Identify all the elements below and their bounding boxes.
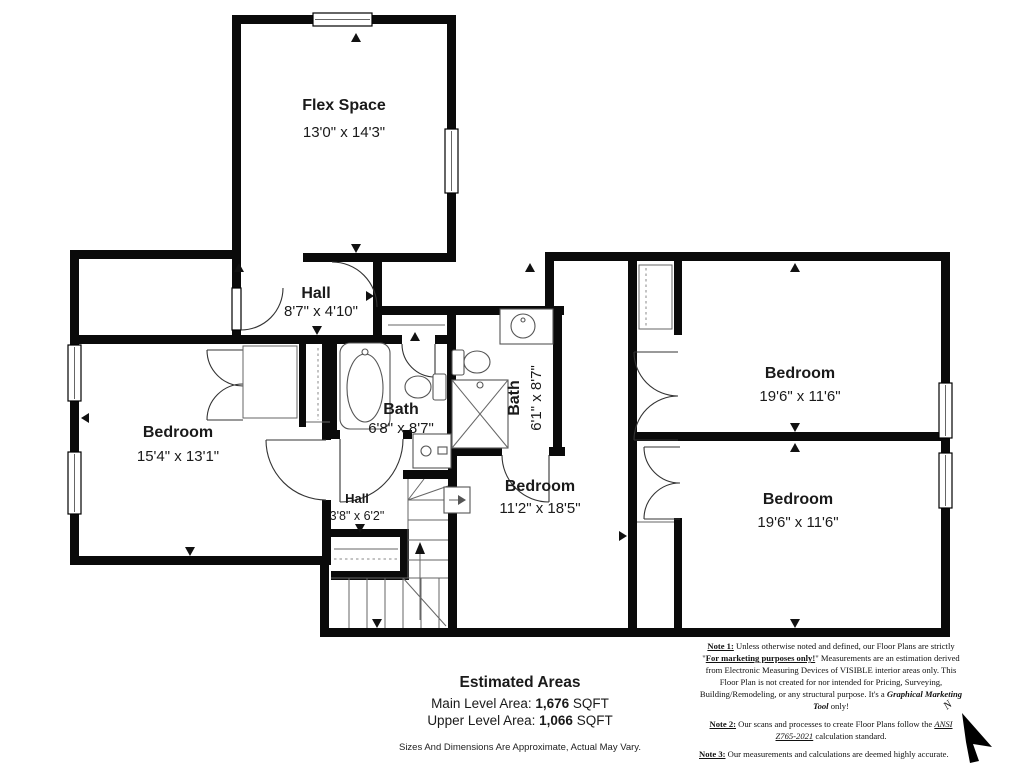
note-2: Note 2: Our scans and processes to creat… [699, 718, 963, 742]
sink-counter-small-bath [500, 309, 553, 344]
floor-plan-page: Flex Space 13'0" x 14'3" Hall 8'7" x 4'1… [0, 0, 1024, 768]
room-dims-hall-upper: 8'7" x 4'10" [284, 303, 358, 320]
toilet-small-bath [452, 350, 490, 375]
closet-bedroom-left [243, 346, 297, 418]
room-dims-bath-main: 6'8" x 8'7" [368, 420, 434, 437]
room-dims-bath-small: 6'1" x 8'7" [528, 365, 545, 431]
estimated-areas-title: Estimated Areas [370, 674, 670, 692]
room-label-bedroom-left: Bedroom [143, 424, 213, 441]
room-dims-bedroom-top-right: 19'6" x 11'6" [759, 388, 840, 405]
closet-lower-hall [334, 549, 398, 559]
upper-level-area-line: Upper Level Area: 1,066 SQFT [370, 713, 670, 728]
room-label-bedroom-top-right: Bedroom [765, 365, 835, 382]
room-dims-flex-space: 13'0" x 14'3" [303, 124, 385, 141]
note-1: Note 1: Unless otherwise noted and defin… [699, 640, 963, 712]
room-label-bedroom-middle: Bedroom [505, 478, 575, 495]
room-label-bath-main: Bath [383, 401, 419, 418]
room-label-bedroom-bottom-right: Bedroom [763, 491, 833, 508]
stairs-landing-marker [444, 487, 470, 513]
main-level-area-line: Main Level Area: 1,676 SQFT [370, 696, 670, 711]
notes-block: Note 1: Unless otherwise noted and defin… [699, 640, 963, 766]
room-label-flex-space: Flex Space [302, 97, 386, 114]
room-dims-bedroom-left: 15'4" x 13'1" [137, 448, 219, 465]
room-dims-bedroom-bottom-right: 19'6" x 11'6" [757, 514, 838, 531]
stairs-direction-arrow [415, 542, 425, 620]
room-dims-bedroom-middle: 11'2" x 18'5" [499, 500, 580, 517]
room-label-hall-upper: Hall [301, 285, 330, 302]
room-dims-hall-lower: 3'8" x 6'2" [330, 509, 385, 523]
toilet-main-bath [405, 374, 446, 400]
note-3: Note 3: Our measurements and calculation… [699, 748, 963, 760]
north-arrow-icon [962, 713, 992, 763]
dimensions-disclaimer: Sizes And Dimensions Are Approximate, Ac… [370, 742, 670, 753]
vanity-sink-main-bath [413, 434, 451, 468]
shower [452, 380, 508, 448]
estimated-areas-block: Estimated Areas Main Level Area: 1,676 S… [370, 674, 670, 753]
room-label-hall-lower: Hall [345, 491, 369, 506]
door-leaf-storage [232, 288, 241, 330]
closet-bedroom-top-right [639, 265, 672, 329]
room-label-bath-small: Bath [506, 380, 523, 416]
wall-ticks [81, 33, 800, 628]
